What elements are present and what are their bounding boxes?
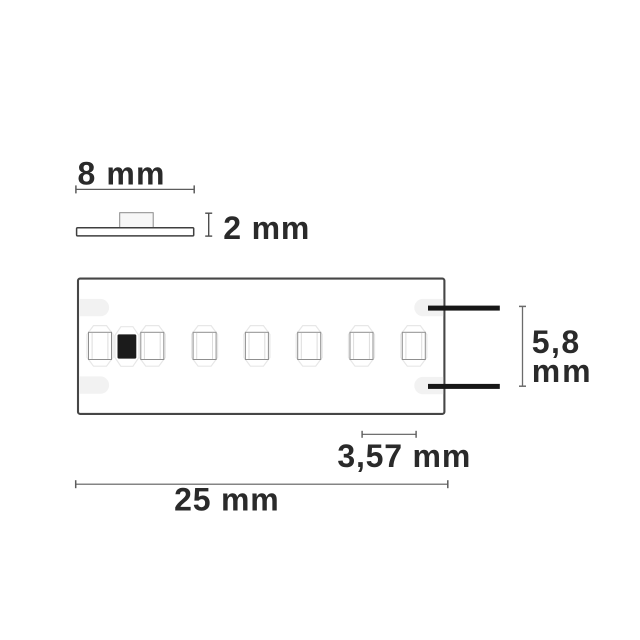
svg-text:8 mm: 8 mm xyxy=(78,155,166,191)
svg-text:2 mm: 2 mm xyxy=(223,210,310,246)
svg-text:25 mm: 25 mm xyxy=(174,481,279,517)
svg-text:mm: mm xyxy=(532,353,593,389)
svg-text:3,57 mm: 3,57 mm xyxy=(337,438,471,474)
